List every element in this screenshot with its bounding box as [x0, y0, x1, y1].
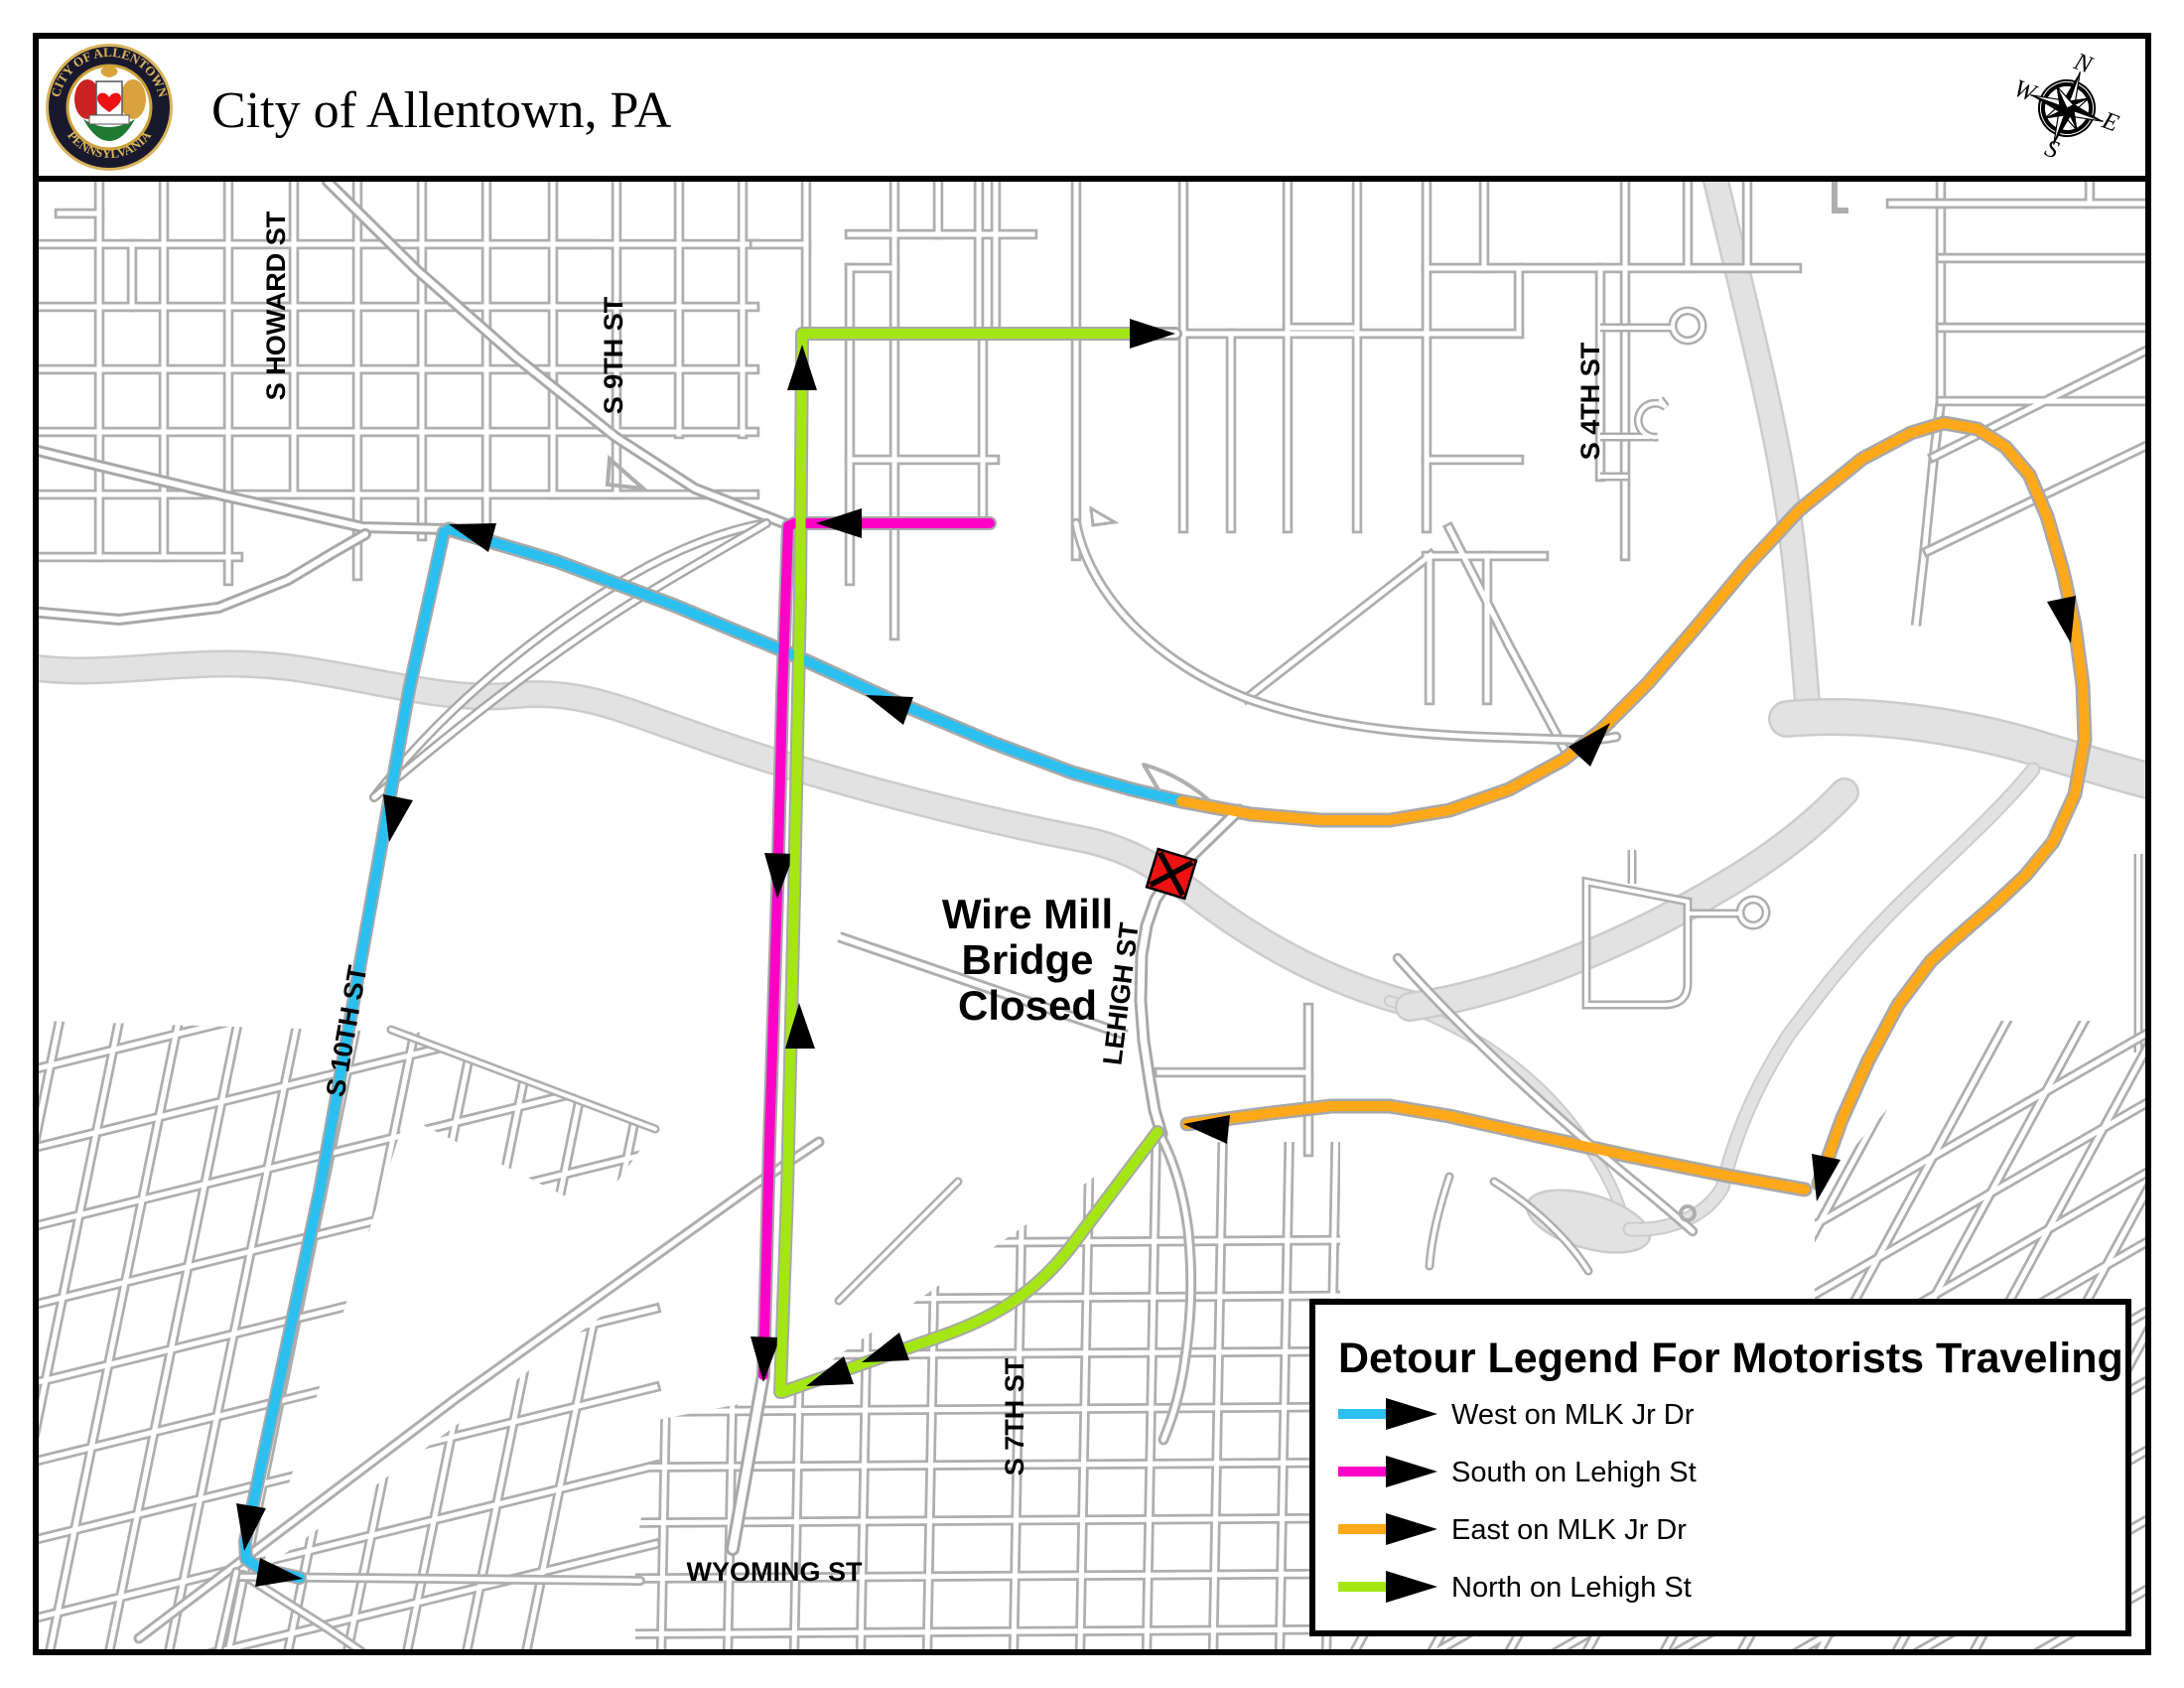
svg-text:City of Allentown, PA: City of Allentown, PA — [211, 82, 672, 139]
svg-text:Bridge: Bridge — [961, 936, 1093, 983]
svg-text:S HOWARD ST: S HOWARD ST — [261, 211, 291, 400]
svg-text:Wire Mill: Wire Mill — [942, 891, 1113, 937]
svg-text:S 4TH ST: S 4TH ST — [1575, 342, 1605, 460]
svg-text:West on MLK Jr Dr: West on MLK Jr Dr — [1451, 1399, 1695, 1431]
svg-text:East on MLK Jr Dr: East on MLK Jr Dr — [1451, 1514, 1687, 1546]
svg-text:S 7TH ST: S 7TH ST — [1000, 1357, 1029, 1476]
svg-text:Closed: Closed — [958, 982, 1097, 1029]
svg-text:S 9TH ST: S 9TH ST — [599, 296, 628, 414]
svg-text:WYOMING ST: WYOMING ST — [687, 1557, 863, 1587]
svg-text:North on Lehigh St: North on Lehigh St — [1451, 1572, 1692, 1604]
svg-text:Detour Legend For Motorists Tr: Detour Legend For Motorists Traveling — [1338, 1335, 2123, 1382]
svg-text:South on Lehigh St: South on Lehigh St — [1451, 1457, 1697, 1488]
